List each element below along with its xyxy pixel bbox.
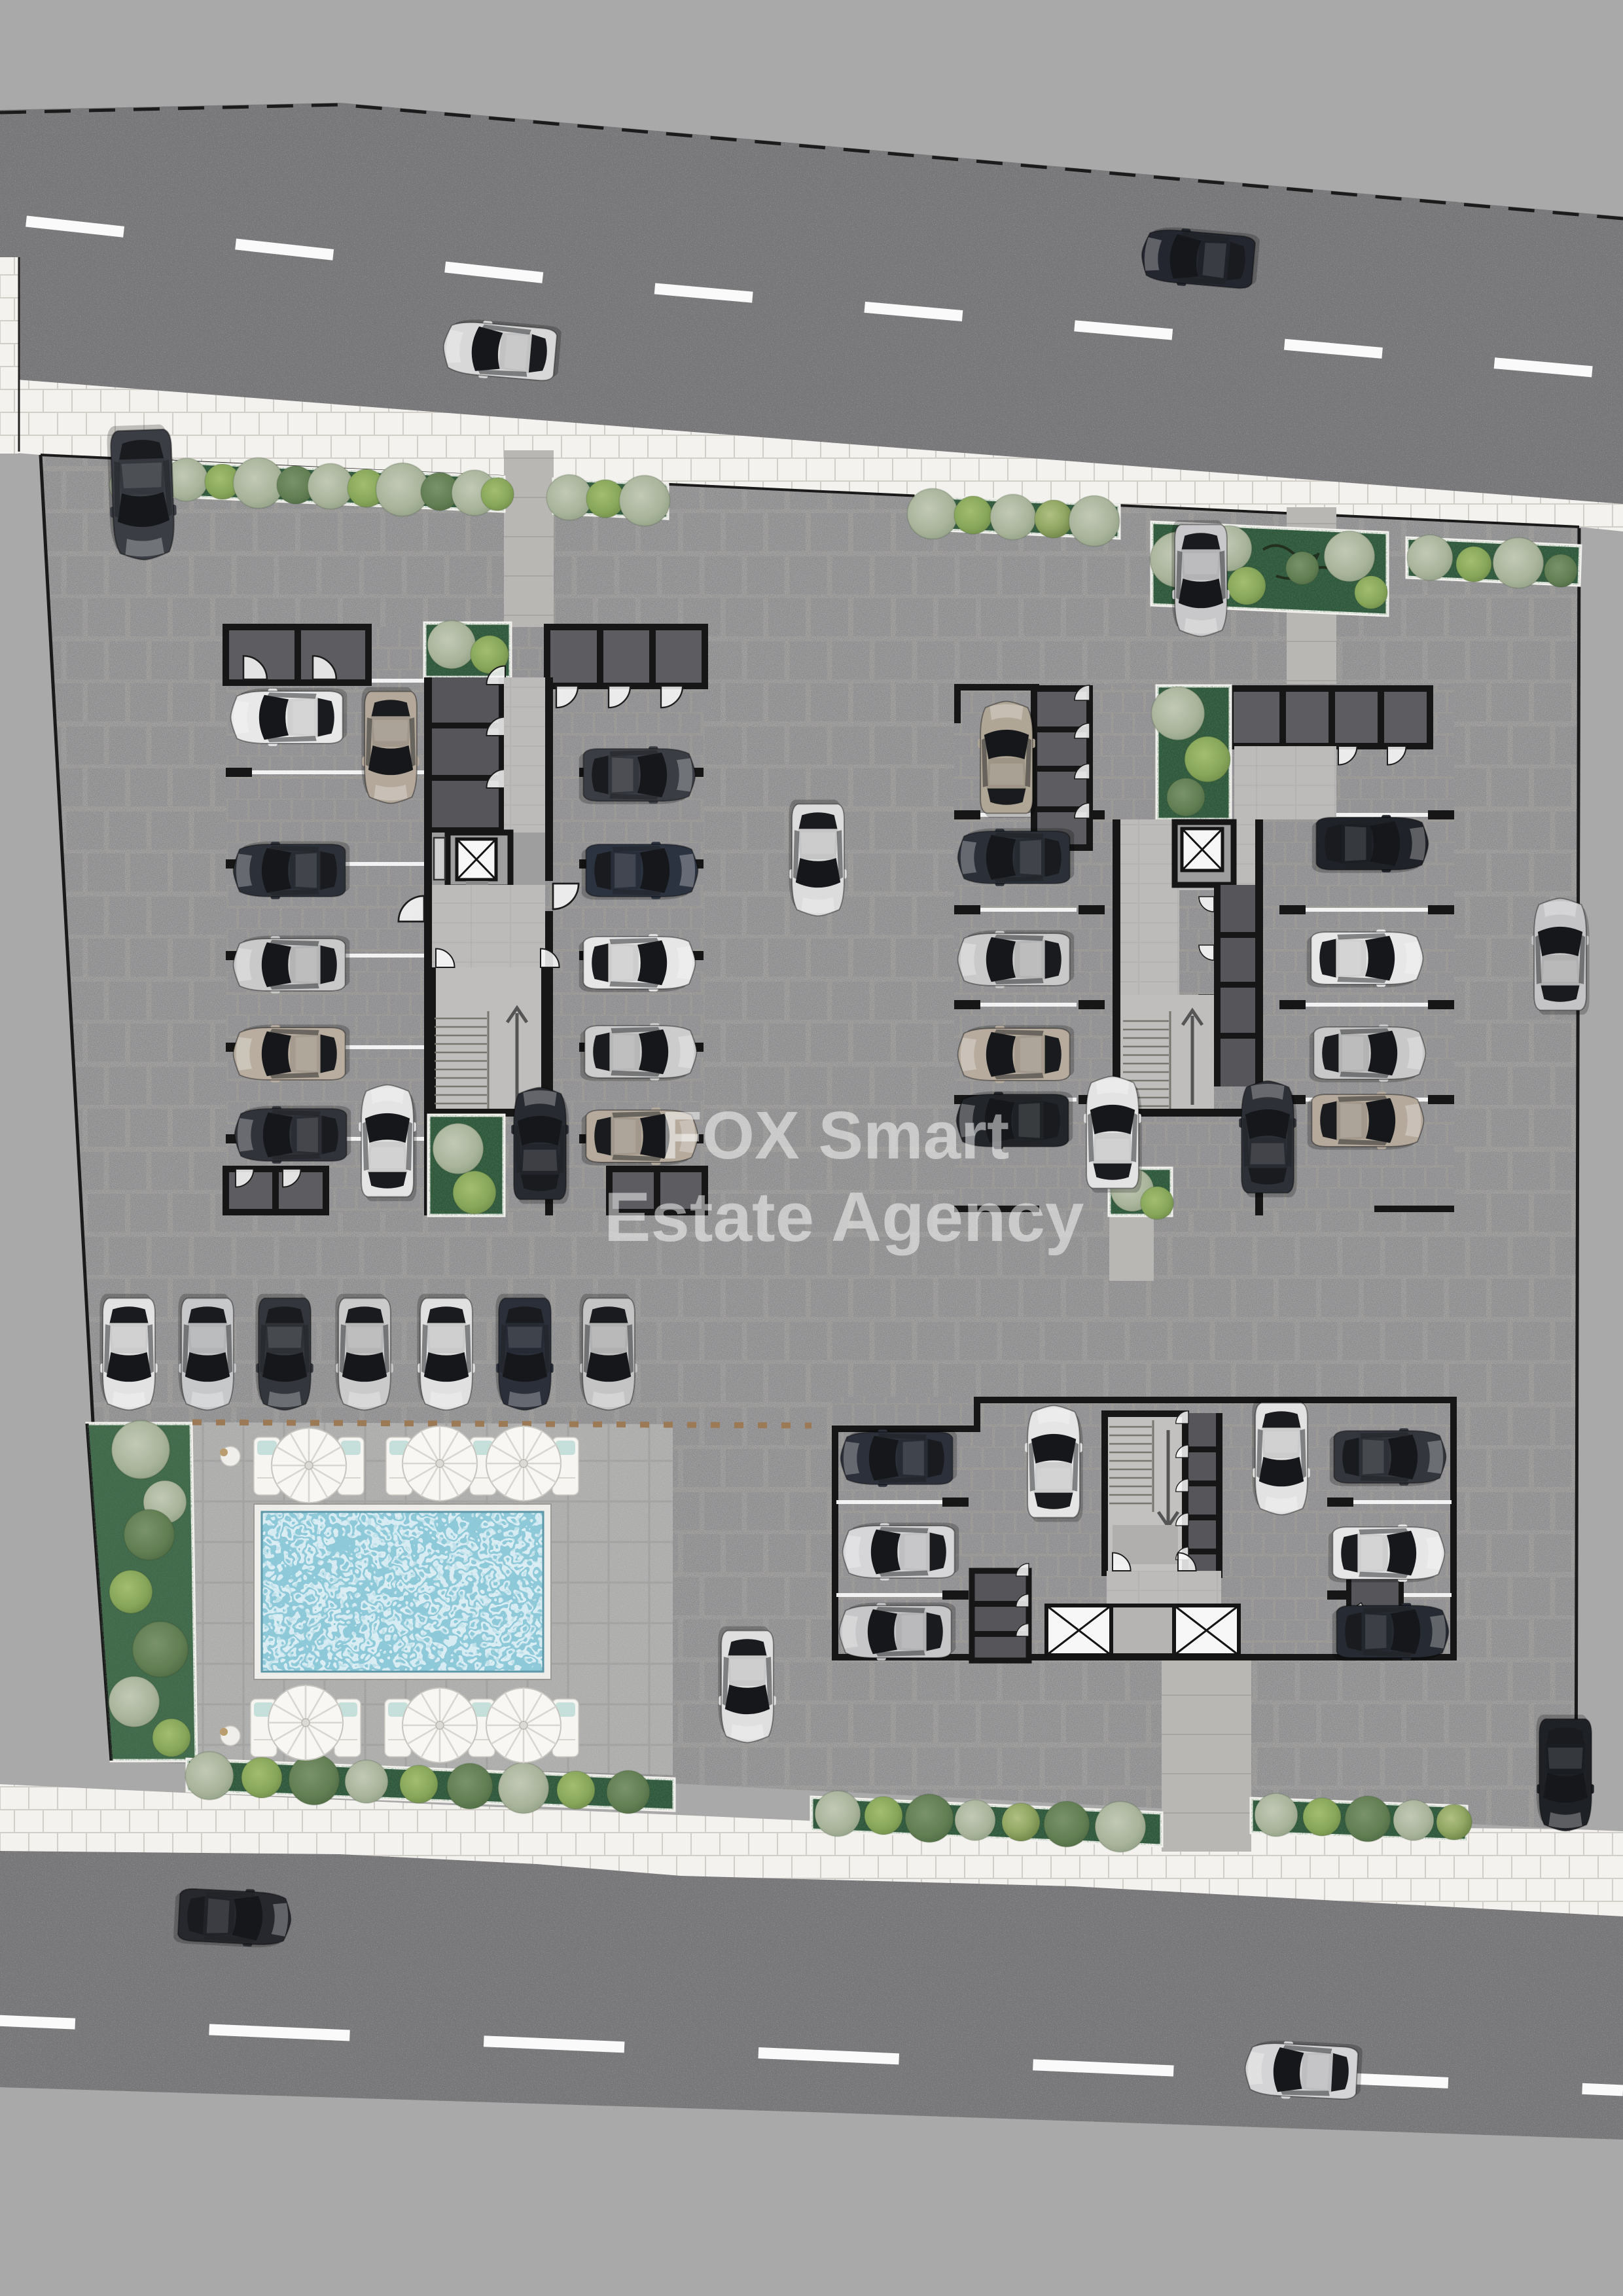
svg-text:Estate Agency: Estate Agency: [604, 1177, 1084, 1256]
svg-text:FOX Smart: FOX Smart: [661, 1098, 1009, 1173]
